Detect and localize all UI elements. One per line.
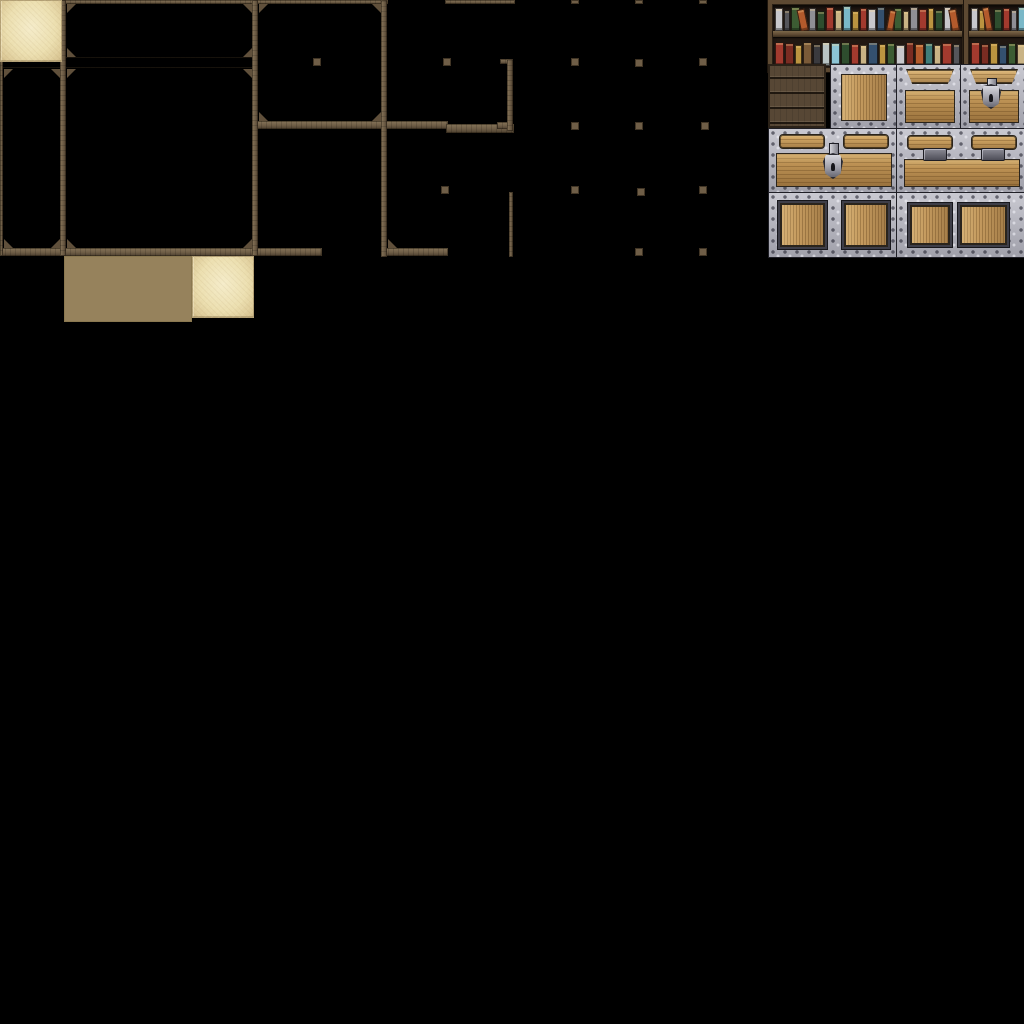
corner-brace [372,112,381,121]
corner-brace [388,239,397,248]
chest-lid-inset [906,69,954,84]
book-spine [896,45,904,66]
ornate-metal-crate [830,64,898,130]
chest-base-panels-b [896,192,1024,258]
book-spine [910,7,918,31]
wall-post-knob [441,186,449,194]
sand-floor-tile-2 [192,256,254,318]
shelf-divider [969,31,1024,37]
book-spine [822,43,830,66]
bookshelf-wide [768,0,967,72]
hinge-icon [981,148,1005,161]
chest-front-lock [768,128,898,194]
book-spine [981,44,989,66]
book-spine [990,43,998,66]
chest-front-wood [904,159,1020,187]
wall-post-knob [571,0,579,4]
book-spine [826,7,834,31]
book-spine [803,43,812,66]
hinge-icon [923,148,947,161]
corner-brace [243,4,252,13]
book-spine [934,45,941,66]
wood-beam [381,0,387,257]
chest-base-panel [780,203,825,247]
dark-plank-crate [768,64,826,128]
chest-top-plain [896,64,962,130]
book-spine [994,9,1001,31]
chest-top-lock [960,64,1024,130]
book-spine [841,43,849,66]
book-spine [852,11,859,31]
bookshelf-wide-bottom-row [775,43,960,66]
wood-beam [445,0,515,4]
book-spine [879,44,886,66]
book-spine [775,8,783,31]
book-spine [971,8,978,31]
wall-post-knob [699,186,707,194]
book-spine [1008,43,1016,66]
book-spine [953,44,960,66]
wall-post-knob [637,188,645,196]
book-spine [813,44,820,66]
chest-base-panel [960,205,1007,245]
chest-base-panels-a [768,192,898,258]
keyhole-icon [831,163,835,171]
corner-brace [243,69,252,78]
wall-post-knob [635,0,643,4]
chest-lid-inset [843,134,889,149]
book-spine [843,6,851,31]
wood-beam [0,248,322,256]
wall-post-knob [443,58,451,66]
book-spine [831,43,840,66]
wall-post-knob [571,186,579,194]
chest-base-panel [910,205,950,245]
wood-beam [252,0,258,256]
corner-brace [51,239,60,248]
corner-brace [4,239,13,248]
book-spine [1018,7,1024,31]
book-spine [868,9,876,31]
wall-post-knob [571,58,579,66]
chest-lid-inset [779,134,825,149]
wall-post-knob [635,248,643,256]
book-spine [817,11,825,31]
wall-post-knob [571,122,579,130]
bookshelf-wide-top-row [775,6,960,31]
book-spine [887,43,895,66]
wall-post-knob [701,122,709,130]
cobblestone-floor-tile [64,256,192,322]
wood-beam [507,59,513,131]
book-spine [860,8,868,31]
corner-brace [67,4,76,13]
shelf-divider [773,31,962,37]
book-spine [1011,10,1017,31]
book-spine [971,43,980,66]
tileset-canvas [0,0,1024,1024]
book-spine [835,10,842,31]
wood-beam [256,121,448,129]
book-spine [809,8,816,31]
corner-brace [51,69,60,78]
wall-post-knob [635,59,643,67]
book-spine [860,45,867,66]
bookshelf-small [964,0,1024,72]
book-spine [877,7,885,31]
corner-brace [4,69,13,78]
book-spine [906,43,914,66]
wall-post-knob [635,122,643,130]
chest-base-panel [844,203,888,247]
wood-beam [509,192,513,257]
book-spine [784,10,791,31]
book-spine [1003,8,1010,31]
corner-brace [243,239,252,248]
corner-brace [259,112,268,121]
corner-brace [67,239,76,248]
book-spine [942,43,951,66]
crate-wood-panel [841,74,887,121]
wall-post-knob [699,0,707,4]
corner-brace [67,69,76,78]
chest-front-hinges [896,128,1024,194]
book-spine [999,45,1007,66]
book-spine [785,43,793,66]
book-spine [903,11,910,31]
corner-brace [67,48,76,57]
book-spine [1017,44,1024,66]
book-spine [928,8,935,31]
book-spine [775,43,784,66]
book-spine [925,43,933,66]
bookshelf-small-bottom-row [971,43,1024,66]
corner-brace [372,4,381,13]
wall-post-knob [699,248,707,256]
book-spine [851,44,859,66]
sand-floor-tile [0,0,62,62]
keyhole-icon [989,94,993,102]
wood-beam [383,248,448,256]
book-spine [915,44,923,66]
wall-post-knob [313,58,321,66]
chest-front-wood [905,90,955,123]
bookshelf-small-top-row [971,6,1024,31]
book-spine [795,45,802,66]
book-spine [919,9,927,31]
wall-post-knob [699,58,707,66]
corner-brace [243,48,252,57]
book-spine [935,10,943,31]
corner-brace [259,4,268,13]
book-spine [868,43,877,66]
